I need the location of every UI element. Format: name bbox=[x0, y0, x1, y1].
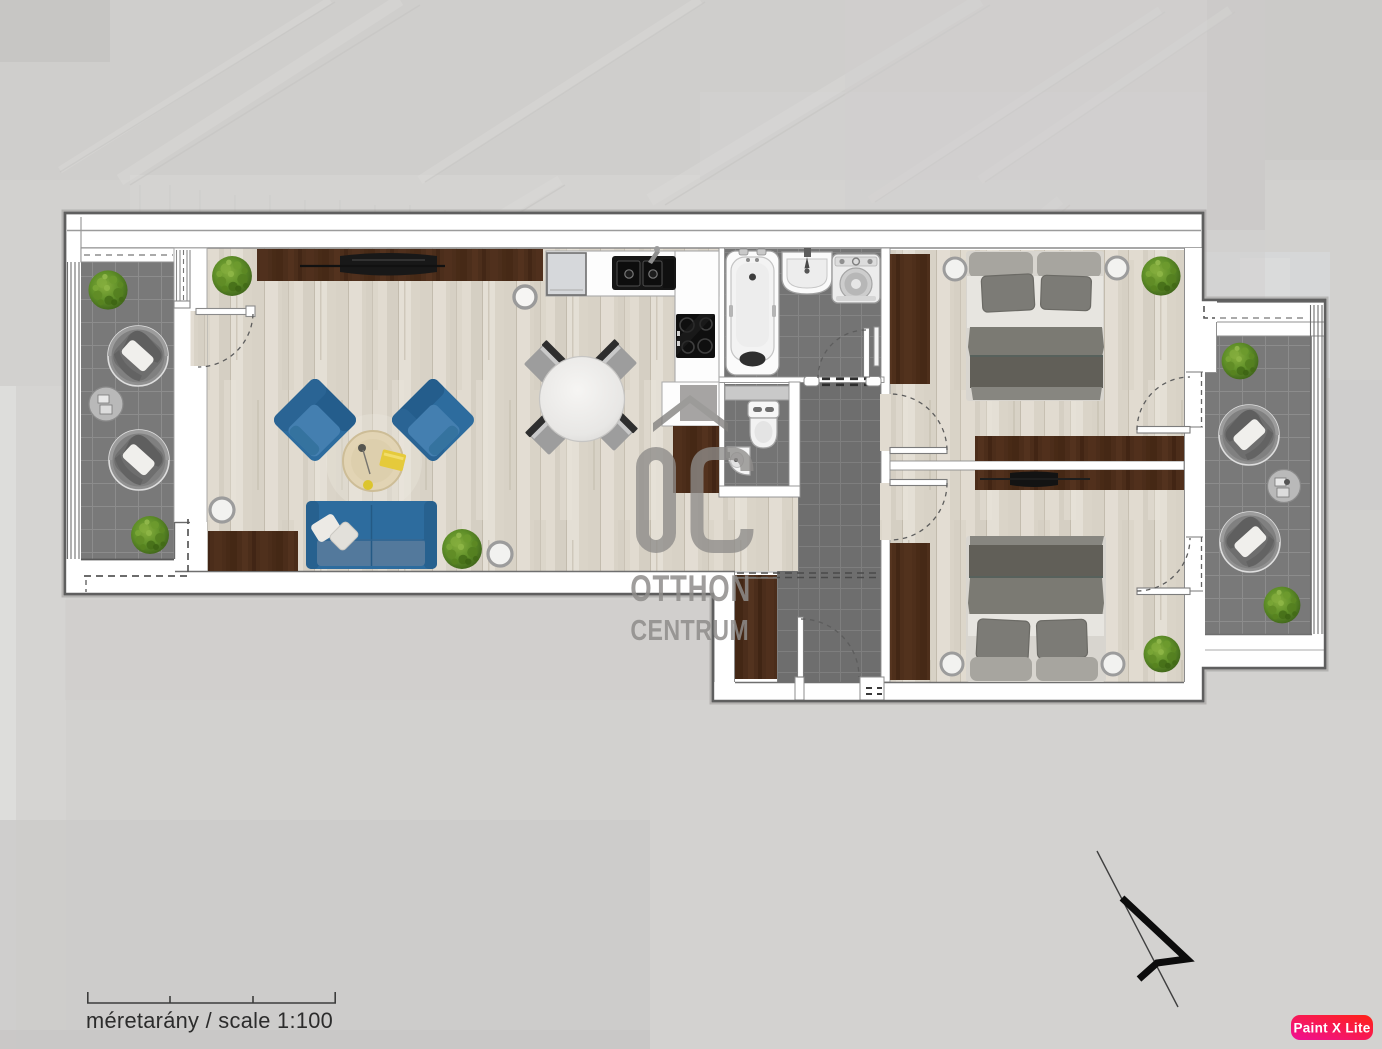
svg-text:CENTRUM: CENTRUM bbox=[630, 613, 749, 646]
svg-text:méretarány / scale 1:100: méretarány / scale 1:100 bbox=[86, 1008, 333, 1033]
svg-text:Paint X Lite: Paint X Lite bbox=[1293, 1021, 1370, 1036]
svg-text:OTTHON: OTTHON bbox=[630, 567, 751, 609]
